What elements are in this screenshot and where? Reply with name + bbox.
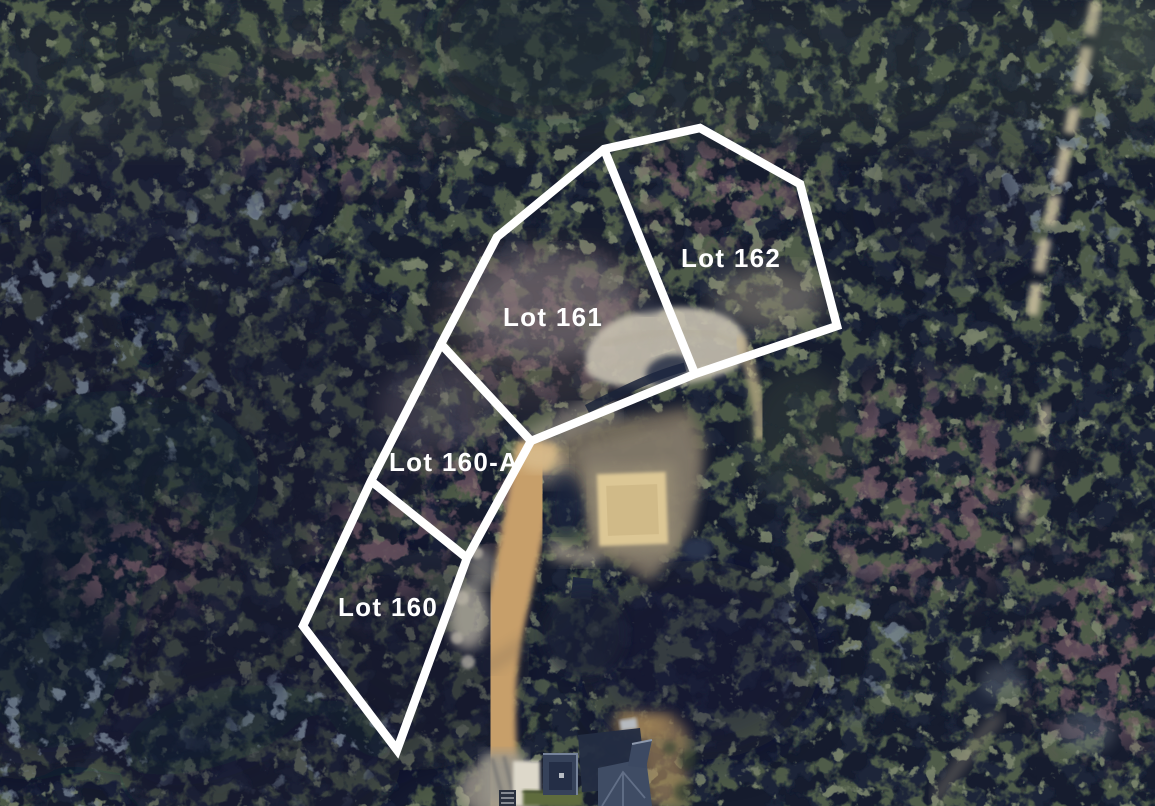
svg-text:Lot 161: Lot 161 [503,302,603,332]
svg-text:Lot 160-A: Lot 160-A [389,447,519,477]
svg-text:Lot 162: Lot 162 [681,243,781,273]
svg-text:Lot 160: Lot 160 [338,592,438,622]
